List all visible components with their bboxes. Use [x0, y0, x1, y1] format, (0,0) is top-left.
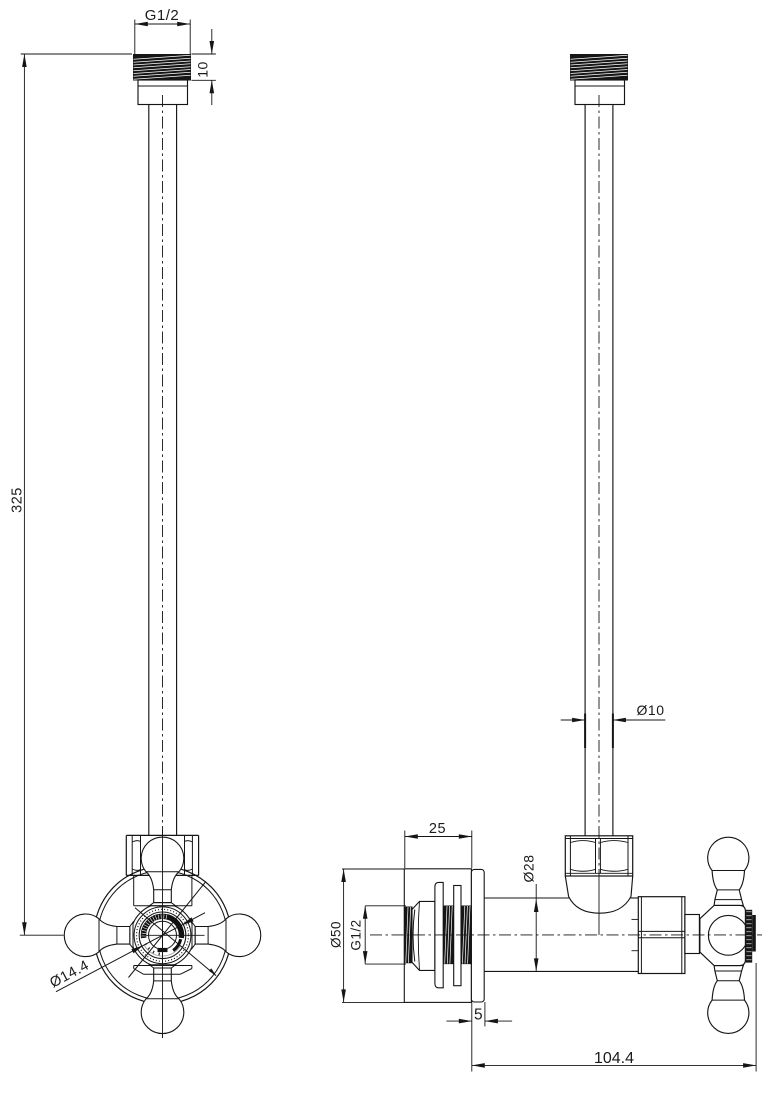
svg-text:G1/2: G1/2	[145, 7, 180, 24]
svg-text:Ø10: Ø10	[637, 702, 665, 718]
svg-text:5: 5	[474, 1007, 483, 1024]
svg-text:Ø50: Ø50	[329, 921, 344, 948]
svg-text:25: 25	[429, 821, 446, 837]
svg-text:Ø28: Ø28	[521, 855, 537, 883]
svg-text:104.4: 104.4	[594, 1050, 634, 1067]
svg-text:G1/2: G1/2	[349, 919, 364, 950]
svg-text:325: 325	[10, 487, 26, 513]
svg-text:10: 10	[195, 61, 211, 78]
